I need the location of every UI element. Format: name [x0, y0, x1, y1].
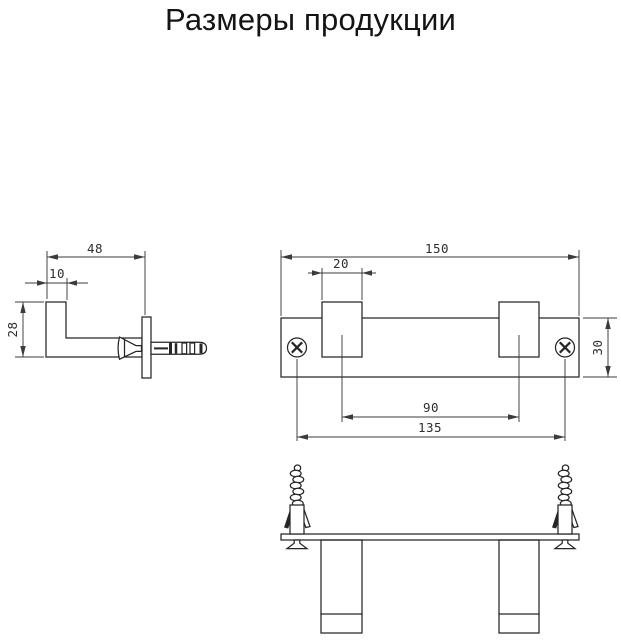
dimension-90: 90	[342, 335, 519, 422]
wall-plate	[142, 317, 151, 378]
dimension-10: 10	[25, 266, 88, 300]
wall-anchor-left-icon	[284, 465, 310, 549]
dimension-28: 28	[5, 302, 44, 357]
dim-label-length: 150	[425, 241, 449, 256]
page: { "title": "Размеры продукции", "colors"…	[0, 0, 621, 640]
top-view	[281, 465, 579, 633]
countersunk-screw-icon	[118, 337, 141, 359]
wall-anchor-side-icon	[151, 342, 207, 354]
dim-label-hook-width-side: 10	[49, 266, 65, 281]
technical-drawing: 48 10 28	[0, 0, 621, 640]
front-view: 150 20 30 90	[281, 241, 617, 441]
hook-right-top	[499, 540, 539, 633]
dim-label-hook-width-front: 20	[333, 256, 349, 271]
backplate-edge	[281, 534, 579, 540]
hook-left-top	[321, 540, 362, 633]
dimension-30: 30	[583, 318, 617, 377]
side-view: 48 10 28	[5, 241, 207, 378]
dim-label-height-side: 28	[5, 321, 20, 337]
dim-label-depth: 48	[87, 241, 103, 256]
dim-label-height-front: 30	[590, 339, 605, 355]
screw-left-icon	[288, 338, 307, 357]
screw-right-icon	[556, 338, 575, 357]
dim-label-screw-spacing: 135	[418, 420, 442, 435]
dim-label-hook-spacing: 90	[423, 400, 439, 415]
dimension-20: 20	[308, 256, 376, 300]
wall-anchor-right-icon	[552, 465, 578, 549]
